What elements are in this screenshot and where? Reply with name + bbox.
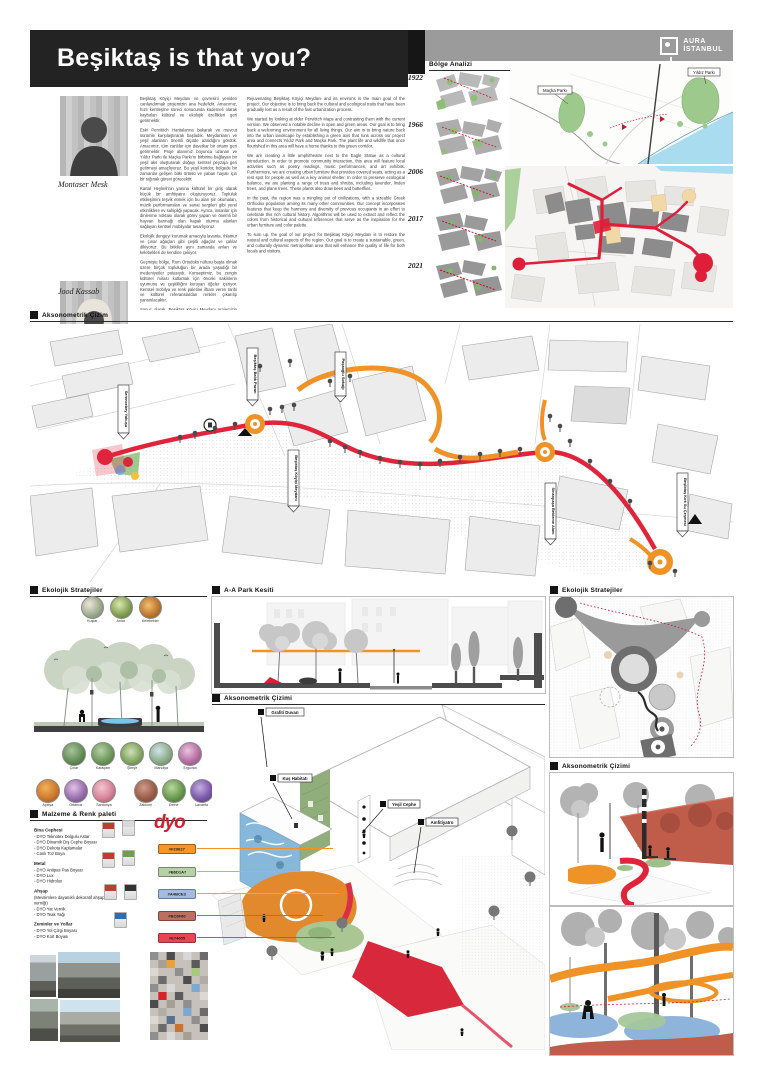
color-swatch: #F29627 bbox=[158, 844, 196, 854]
street-photo bbox=[60, 1000, 120, 1042]
flora-photo bbox=[36, 779, 60, 803]
flora-photo bbox=[178, 742, 202, 766]
street-photo bbox=[30, 955, 56, 997]
flora-photo bbox=[92, 779, 116, 803]
section-header-master-plan: Aksonometrik Çizim bbox=[30, 311, 733, 322]
activity-node bbox=[245, 414, 265, 434]
birdhouse-icon bbox=[294, 823, 298, 828]
paint-can-icon bbox=[114, 912, 127, 928]
top-banner: AURA İSTANBUL bbox=[425, 30, 733, 61]
poster: Beşiktaş is that you? AURA İSTANBUL Mont… bbox=[0, 0, 763, 1079]
section-header-ecology-right: Ekolojik Stratejiler bbox=[550, 586, 733, 597]
title-block: Beşiktaş is that you? bbox=[30, 30, 408, 87]
page-title: Beşiktaş is that you? bbox=[30, 30, 408, 73]
swatch-leader-line bbox=[197, 937, 335, 938]
svg-text:Serencebey Yokuşu: Serencebey Yokuşu bbox=[124, 391, 129, 428]
svg-text:Kuş Habitatı: Kuş Habitatı bbox=[282, 776, 307, 781]
swatch-leader-line bbox=[197, 848, 333, 849]
flora-photo bbox=[91, 742, 115, 766]
paint-can-icon bbox=[102, 822, 115, 838]
street-label: Beşiktaş Kırk Su Çeşmesi bbox=[677, 473, 688, 537]
year-label: 2006 bbox=[408, 167, 423, 176]
svg-text:Beşiktaş Kırk Su Çeşmesi: Beşiktaş Kırk Su Çeşmesi bbox=[683, 478, 688, 526]
svg-text:Sinanpaşa Bekleme Alanı: Sinanpaşa Bekleme Alanı bbox=[551, 488, 556, 535]
section-marker bbox=[408, 30, 425, 74]
birdhouse-icon bbox=[90, 690, 94, 695]
flora-photo bbox=[134, 779, 158, 803]
perspective-render-bottom bbox=[550, 907, 733, 1055]
yildiz-park-area bbox=[682, 78, 719, 124]
intro-text-turkish: Beşiktaş Köyiçi Meydanı ve çevresini yen… bbox=[140, 96, 237, 310]
historic-map-thumbnail-2017 bbox=[434, 213, 504, 253]
person-silhouette-icon bbox=[60, 96, 128, 176]
historic-map-thumbnail-2021 bbox=[434, 260, 504, 300]
street-photo bbox=[58, 952, 120, 998]
flora-photo bbox=[120, 742, 144, 766]
aura-logo-text: AURA İSTANBUL bbox=[683, 38, 723, 53]
intro-text-english: Rejuvenating Beşiktaş Köyiçi Meydanı and… bbox=[247, 96, 405, 310]
paint-can-icon bbox=[104, 884, 117, 900]
paint-can-icon bbox=[122, 850, 135, 866]
flora-photo bbox=[162, 779, 186, 803]
color-swatch: #BC6F60 bbox=[158, 911, 196, 921]
color-swatch: #A4BCE3 bbox=[158, 889, 196, 899]
dyo-brand-logo: dyo bbox=[154, 812, 185, 834]
fauna-row: Kuşlar Arılar Kelebekler bbox=[80, 596, 162, 626]
year-label: 1966 bbox=[408, 120, 423, 129]
forest-section-illustration bbox=[34, 630, 204, 742]
material-color-mosaic bbox=[150, 952, 208, 1040]
street-label: Serencebey Yokuşu bbox=[118, 385, 129, 439]
swatch-leader-line bbox=[197, 871, 315, 872]
year-label: 2021 bbox=[408, 261, 423, 270]
paint-can-icon bbox=[124, 884, 137, 900]
street-photo bbox=[30, 999, 58, 1041]
aura-logo: AURA İSTANBUL bbox=[660, 37, 723, 55]
site-route-map bbox=[505, 166, 733, 308]
park-section-drawing bbox=[212, 597, 545, 693]
flora-row-1: Çınar Karaçam Şimşir Manolya Erguvan bbox=[62, 742, 202, 773]
color-swatch: #B6D1A7 bbox=[158, 867, 196, 877]
section-header-axon-right: Aksonometrik Çizimi bbox=[550, 762, 733, 773]
fauna-photo-butterflies bbox=[139, 596, 162, 619]
aura-logo-icon bbox=[660, 37, 678, 55]
year-label: 2017 bbox=[408, 214, 423, 223]
team-member-name-2: Jood Kassab bbox=[58, 287, 99, 296]
activity-node bbox=[535, 442, 555, 462]
flora-photo bbox=[149, 742, 173, 766]
section-header-axon-mid: Aksonometrik Çizimi bbox=[212, 694, 545, 705]
section-header-park-section: A-A Park Kesiti bbox=[212, 586, 545, 597]
team-member-name-1: Montaser Mesk bbox=[58, 180, 108, 189]
fauna-photo-birds bbox=[81, 596, 104, 619]
historic-map-thumbnail-2006 bbox=[434, 166, 504, 206]
materials-list: Bina Cephesi - DYO Teknotex Dolgulu Asta… bbox=[34, 820, 112, 952]
axonometric-drawing-mid: Grafiti Duvarı Kuş Habitatı Yeşil Cephe … bbox=[212, 705, 545, 1050]
svg-text:Beşiktaş Balık Pazarı: Beşiktaş Balık Pazarı bbox=[253, 355, 258, 394]
portrait-photo-1 bbox=[60, 96, 128, 176]
svg-text:Yeşil Cephe: Yeşil Cephe bbox=[392, 802, 417, 807]
fauna-photo-bees bbox=[110, 596, 133, 619]
master-plan-drawing: Serencebey Yokuşu Beşiktaş Balık Pazarı … bbox=[30, 324, 733, 582]
flora-photo bbox=[190, 779, 214, 803]
svg-text:Maçka Parkı: Maçka Parkı bbox=[543, 88, 567, 93]
birdhouse-icon bbox=[150, 692, 154, 697]
year-label: 1922 bbox=[408, 73, 423, 82]
svg-text:Grafiti Duvarı: Grafiti Duvarı bbox=[271, 710, 298, 715]
flora-photo bbox=[64, 779, 88, 803]
svg-text:Paşaoğlu Sokağı: Paşaoğlu Sokağı bbox=[341, 358, 346, 389]
flora-photo bbox=[62, 742, 86, 766]
paint-can-icon bbox=[122, 820, 135, 836]
street-label: Beşiktaş Köyiçi Meydanı bbox=[288, 450, 299, 512]
street-label: Sinanpaşa Bekleme Alanı bbox=[545, 483, 556, 545]
swatch-leader-line bbox=[197, 915, 323, 916]
perspective-render-top bbox=[550, 773, 733, 905]
svg-text:Amfitiyatro: Amfitiyatro bbox=[431, 820, 454, 825]
flora-row-2: Açelya Ortanca Sardunya Zakkum Defne Lav… bbox=[36, 779, 214, 810]
historic-map-thumbnail-1966 bbox=[434, 119, 504, 159]
striped-pole bbox=[642, 789, 647, 859]
ecology-plan-diagram bbox=[550, 597, 733, 757]
street-label: Beşiktaş Balık Pazarı bbox=[247, 348, 258, 406]
street-label: Paşaoğlu Sokağı bbox=[335, 352, 346, 402]
pond-water bbox=[101, 718, 139, 724]
color-swatch: #E74655 bbox=[158, 933, 196, 943]
svg-text:Yıldız Parkı: Yıldız Parkı bbox=[693, 70, 715, 75]
swatch-leader-line bbox=[197, 893, 339, 894]
park-context-map: Maçka Parkı Yıldız Parkı bbox=[510, 64, 733, 164]
paint-can-icon bbox=[102, 852, 115, 868]
historic-map-thumbnail-1922 bbox=[434, 72, 504, 112]
svg-text:Beşiktaş Köyiçi Meydanı: Beşiktaş Köyiçi Meydanı bbox=[294, 455, 299, 500]
